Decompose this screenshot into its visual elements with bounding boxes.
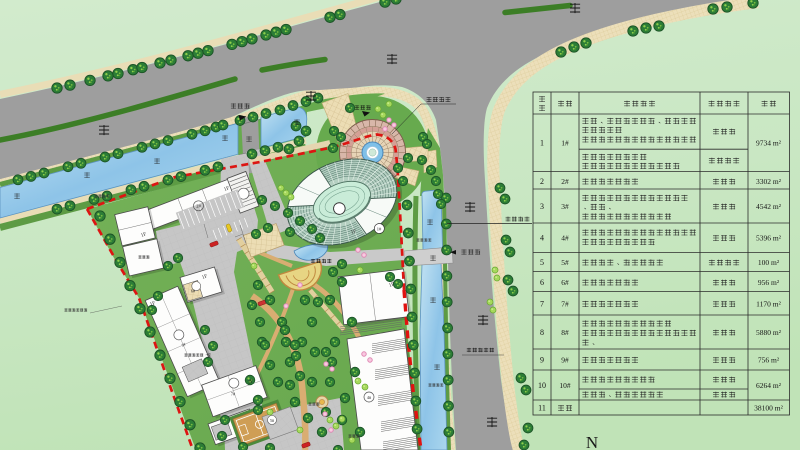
svg-text:8: 8 bbox=[540, 328, 544, 337]
svg-text:11: 11 bbox=[538, 404, 546, 413]
svg-text:1170 m²: 1170 m² bbox=[756, 300, 781, 309]
svg-text:4542 m²: 4542 m² bbox=[756, 202, 782, 211]
svg-text:3: 3 bbox=[540, 202, 544, 211]
svg-text:N: N bbox=[586, 433, 598, 450]
svg-text:2#: 2# bbox=[196, 204, 201, 209]
svg-text:9734 m²: 9734 m² bbox=[756, 139, 782, 148]
svg-text:100 m²: 100 m² bbox=[758, 258, 780, 267]
svg-text:6264 m²: 6264 m² bbox=[756, 381, 782, 390]
svg-text:8#: 8# bbox=[561, 328, 569, 337]
svg-text:1#: 1# bbox=[377, 227, 382, 232]
svg-text:10#: 10# bbox=[559, 381, 571, 390]
svg-text:5#: 5# bbox=[270, 418, 274, 423]
svg-text:1#: 1# bbox=[561, 139, 569, 148]
svg-text:1: 1 bbox=[540, 139, 544, 148]
svg-text:38100 m²: 38100 m² bbox=[754, 404, 783, 413]
svg-text:6: 6 bbox=[540, 278, 544, 287]
svg-text:5#: 5# bbox=[561, 258, 569, 267]
svg-text:756 m²: 756 m² bbox=[758, 356, 780, 365]
svg-text:3#: 3# bbox=[561, 202, 569, 211]
svg-text:4: 4 bbox=[540, 234, 544, 243]
svg-text:7: 7 bbox=[540, 300, 544, 309]
svg-text:2#: 2# bbox=[561, 177, 569, 186]
svg-text:5396 m²: 5396 m² bbox=[756, 234, 782, 243]
svg-text:10: 10 bbox=[538, 381, 546, 390]
svg-text:5880 m²: 5880 m² bbox=[756, 328, 782, 337]
svg-text:6#: 6# bbox=[561, 278, 569, 287]
svg-text:956 m²: 956 m² bbox=[758, 278, 780, 287]
svg-text:3302 m²: 3302 m² bbox=[756, 177, 782, 186]
svg-text:5: 5 bbox=[540, 258, 544, 267]
svg-text:7#: 7# bbox=[561, 300, 569, 309]
svg-text:4#: 4# bbox=[561, 234, 569, 243]
svg-text:2: 2 bbox=[540, 177, 544, 186]
svg-text:9#: 9# bbox=[561, 356, 569, 365]
svg-text:9: 9 bbox=[540, 356, 544, 365]
